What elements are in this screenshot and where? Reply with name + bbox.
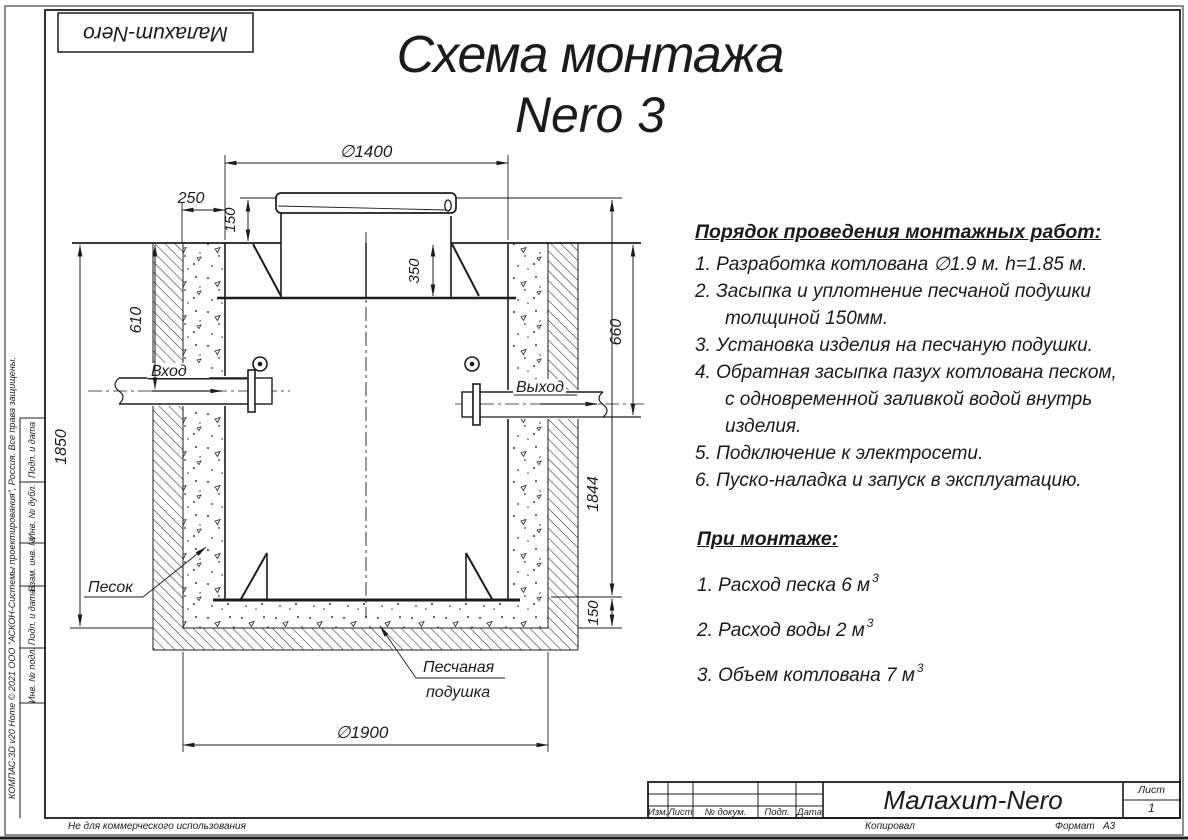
cushion-label-line2: подушка xyxy=(426,684,490,701)
footer-format-value: А3 xyxy=(1103,821,1115,832)
tank-lid xyxy=(276,193,456,213)
footer-kopiroval: Копировал xyxy=(850,821,930,832)
kompas-watermark: КОМПАС-3D v20 Home © 2021 ООО "АСКОН-Сис… xyxy=(7,439,17,799)
margin-cell-inv-podl: Инв. № подл. xyxy=(27,615,37,735)
outlet-label: Выход xyxy=(516,379,564,396)
instruction-line: с одновременной заливкой водой внутрь xyxy=(695,386,1183,413)
footer-note: Не для коммерческого использования xyxy=(68,821,246,832)
montage-item: 2. Расход воды 2 м3 xyxy=(697,612,1097,642)
installation-instructions: Порядок проведения монтажных работ: 1. Р… xyxy=(695,219,1183,494)
logo-text: Малахит-Nero xyxy=(83,21,228,45)
logo-box: Малахит-Nero xyxy=(58,13,253,52)
dim-150-bottom: 150 xyxy=(585,600,602,626)
instructions-heading: Порядок проведения монтажных работ: xyxy=(695,219,1183,246)
instruction-line: 4. Обратная засыпка пазух котлована песк… xyxy=(695,359,1183,386)
dim-1900: ∅1900 xyxy=(336,723,389,742)
cushion-label-line1: Песчаная xyxy=(423,659,495,676)
footer-format-label: Формат xyxy=(1055,821,1095,832)
instruction-line: изделия. xyxy=(695,413,1183,440)
instruction-line: 1. Разработка котлована ∅1.9 м. h=1.85 м… xyxy=(695,251,1183,278)
instruction-line: 5. Подключение к электросети. xyxy=(695,440,1183,467)
dim-610: 610 xyxy=(128,307,145,334)
dim-1850: 1850 xyxy=(53,429,70,465)
sand-backfill xyxy=(183,243,548,628)
montage-heading: При монтаже: xyxy=(697,528,1097,551)
inlet-label: Вход xyxy=(151,363,187,380)
titleblock-sheet-number: 1 xyxy=(1123,801,1180,815)
titleblock-col-doc: № докум. xyxy=(693,807,758,819)
dim-250: 250 xyxy=(177,190,205,207)
instruction-line: толщиной 150мм. xyxy=(695,305,1183,332)
dim-1400: ∅1400 xyxy=(340,142,393,161)
instruction-line: 2. Засыпка и уплотнение песчаной подушки xyxy=(695,278,1183,305)
superscript: 3 xyxy=(867,616,874,630)
montage-notes: При монтаже: 1. Расход песка 6 м3 2. Рас… xyxy=(697,528,1097,702)
instruction-line: 6. Пуско-наладка и запуск в эксплуатацию… xyxy=(695,467,1183,494)
superscript: 3 xyxy=(917,661,924,675)
lifting-eye-right xyxy=(465,357,479,371)
titleblock-col-izm: Изм. xyxy=(648,807,668,819)
titleblock-col-podp: Подп. xyxy=(758,807,796,819)
titleblock-col-data: Дата xyxy=(796,807,823,819)
drawing-sheet: Вход Выход xyxy=(0,0,1188,840)
montage-item: 3. Объем котлована 7 м3 xyxy=(697,657,1097,687)
dim-350: 350 xyxy=(406,258,423,284)
page-subtitle: Nero 3 xyxy=(290,88,890,142)
outlet-pipe: Выход xyxy=(455,379,645,425)
titleblock-company: Малахит-Nero xyxy=(823,782,1123,818)
titleblock-sheet-label: Лист xyxy=(1123,784,1180,796)
montage-item: 1. Расход песка 6 м3 xyxy=(697,567,1097,597)
sand-label: Песок xyxy=(88,579,134,596)
superscript: 3 xyxy=(872,571,879,585)
lifting-eye-left xyxy=(253,357,267,371)
dim-1844: 1844 xyxy=(585,476,602,512)
titleblock-col-list: Лист xyxy=(668,807,693,819)
dim-150-top: 150 xyxy=(222,207,239,233)
page-title: Схема монтажа xyxy=(290,26,890,84)
dim-660: 660 xyxy=(608,319,625,346)
instruction-line: 3. Установка изделия на песчаную подушки… xyxy=(695,332,1183,359)
